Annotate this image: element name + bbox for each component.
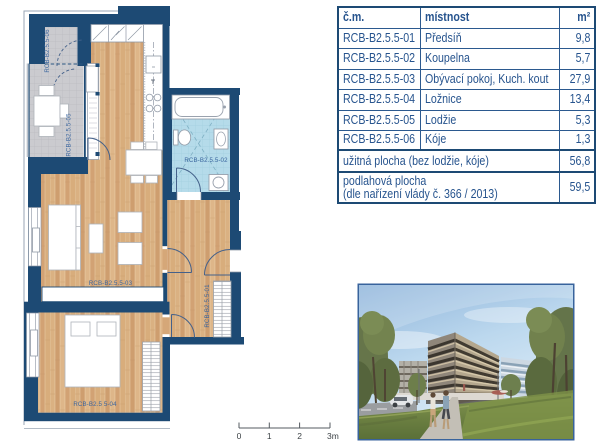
svg-text:RCB-B2.5.5-06: RCB-B2.5.5-06 [44, 29, 51, 73]
svg-text:3m: 3m [327, 431, 339, 441]
svg-text:2: 2 [297, 431, 302, 441]
svg-text:RCB-B2.5.5-01: RCB-B2.5.5-01 [204, 284, 211, 328]
svg-text:0: 0 [237, 431, 242, 441]
svg-text:RCB-B2.5.5-03: RCB-B2.5.5-03 [89, 280, 133, 287]
svg-text:RCB-B2.5 5-04: RCB-B2.5 5-04 [73, 401, 117, 408]
svg-text:RCB-B2.5.5-05: RCB-B2.5.5-05 [66, 113, 73, 157]
svg-text:1: 1 [267, 431, 272, 441]
svg-text:RCB-B2.5.5-02: RCB-B2.5.5-02 [184, 157, 228, 164]
